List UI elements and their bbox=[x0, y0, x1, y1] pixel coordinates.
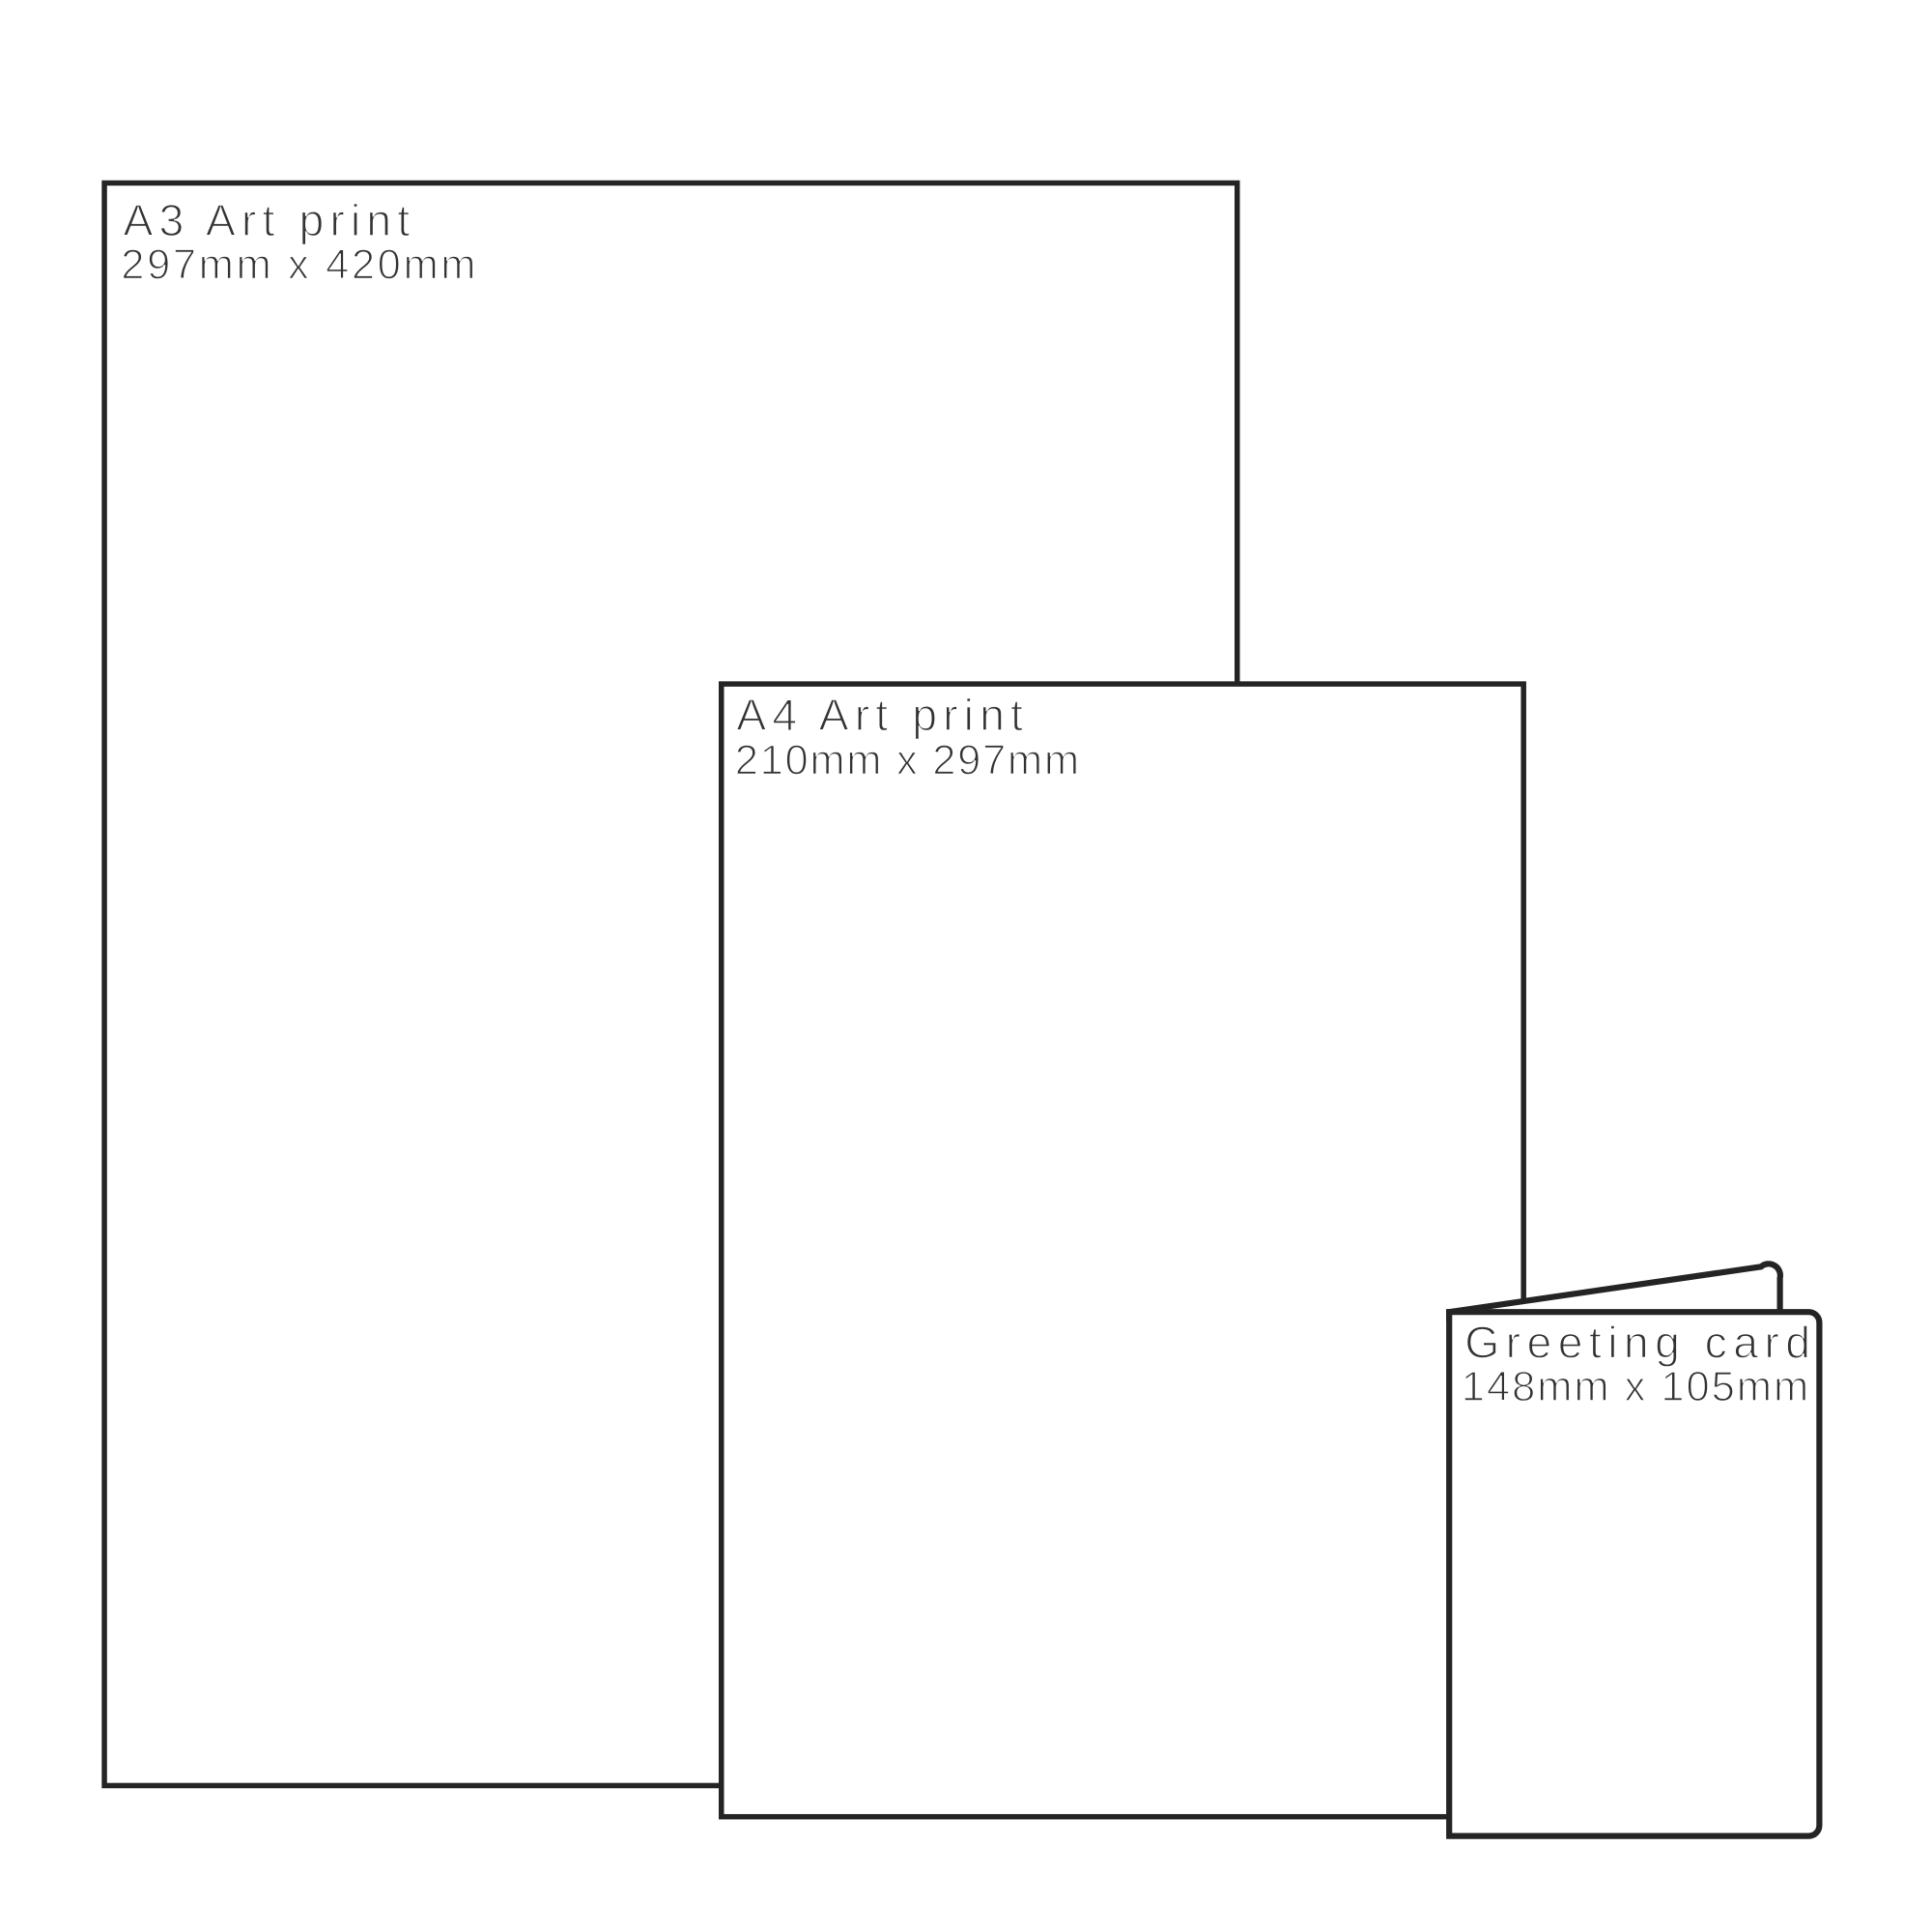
svg-text:A4 Art print: A4 Art print bbox=[736, 690, 1029, 740]
svg-text:210mm x 297mm: 210mm x 297mm bbox=[735, 738, 1081, 784]
svg-text:297mm x 420mm: 297mm x 420mm bbox=[121, 242, 478, 289]
svg-text:A3 Art print: A3 Art print bbox=[124, 195, 416, 245]
svg-text:Greeting card: Greeting card bbox=[1464, 1318, 1816, 1368]
svg-text:148mm x 105mm: 148mm x 105mm bbox=[1462, 1364, 1810, 1410]
